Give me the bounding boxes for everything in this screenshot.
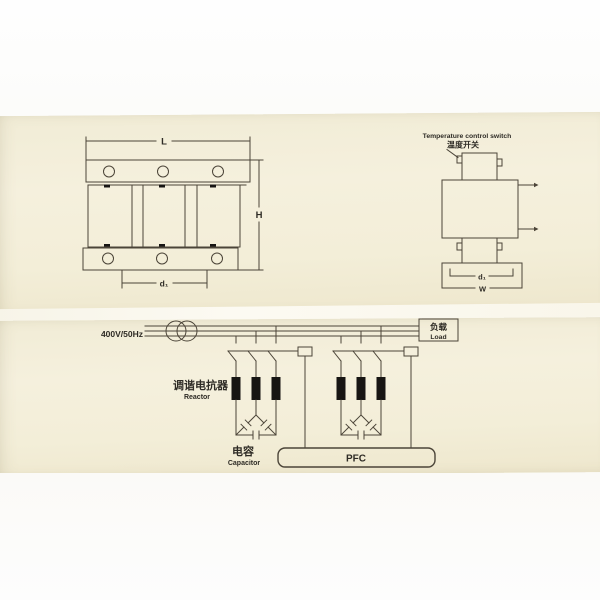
contactor-box (298, 347, 312, 356)
dimension-d-label: d₁ (160, 279, 169, 289)
mounting-hole (103, 253, 114, 264)
coil-terminal-marks (104, 185, 216, 248)
load-label-en: Load (430, 334, 446, 341)
coil-windings (88, 185, 240, 248)
supply-label: 400V/50Hz (101, 329, 143, 339)
capacitor-label-en: Capacitor (228, 460, 261, 467)
bottom-yoke (83, 248, 238, 270)
reactor-coils (232, 377, 281, 400)
mounting-hole (213, 166, 224, 177)
top-terminal-block (457, 153, 502, 180)
pfc-box: PFC (278, 356, 435, 467)
temp-switch-label-en: Temperature control switch (423, 133, 512, 140)
contactor-box (404, 347, 418, 356)
terminal-pins (518, 183, 539, 231)
coil-body (442, 180, 518, 238)
page-margin-top (0, 0, 600, 116)
scanned-page: L (0, 0, 600, 600)
dimension-H-label: H (256, 210, 263, 221)
dimension-W-label: W (479, 285, 487, 294)
front-view-drawing: L (60, 125, 285, 300)
reactor-label-en: Reactor (184, 394, 210, 401)
branch-group-2 (333, 326, 418, 435)
top-yoke (86, 160, 250, 185)
mounting-hole (157, 253, 168, 264)
bottom-block (457, 238, 502, 263)
capacitor-label-zh: 电容 (232, 444, 254, 458)
capacitor-delta-1 (233, 412, 279, 439)
coil (197, 185, 240, 247)
load-box: 负载 Load (419, 319, 458, 341)
dimension-L-label: L (161, 137, 167, 148)
mounting-hole (104, 166, 115, 177)
dimension-L: L (86, 137, 250, 160)
load-label-zh: 负载 (430, 322, 448, 332)
leader-line (447, 150, 458, 158)
temp-switch-label-zh: 温度开关 (447, 140, 479, 150)
reactor-coils (337, 377, 386, 400)
dimension-d: d₁ (122, 270, 207, 289)
dimension-d1-label: d₁ (478, 273, 486, 282)
pfc-label: PFC (346, 454, 366, 465)
side-view-drawing: Temperature control switch 温度开关 (405, 128, 545, 298)
mounting-hole (212, 253, 223, 264)
branch-group-1 (228, 326, 312, 435)
coil (88, 185, 132, 247)
reactor-label-zh: 调谐电抗器 (173, 378, 229, 392)
coil (143, 185, 185, 247)
mounting-base: d₁ W (442, 263, 522, 294)
mounting-hole (158, 166, 169, 177)
circuit-diagram: 400V/50Hz 负载 Load (90, 318, 470, 478)
capacitor-delta-2 (338, 412, 384, 439)
page-margin-bottom (0, 473, 600, 600)
